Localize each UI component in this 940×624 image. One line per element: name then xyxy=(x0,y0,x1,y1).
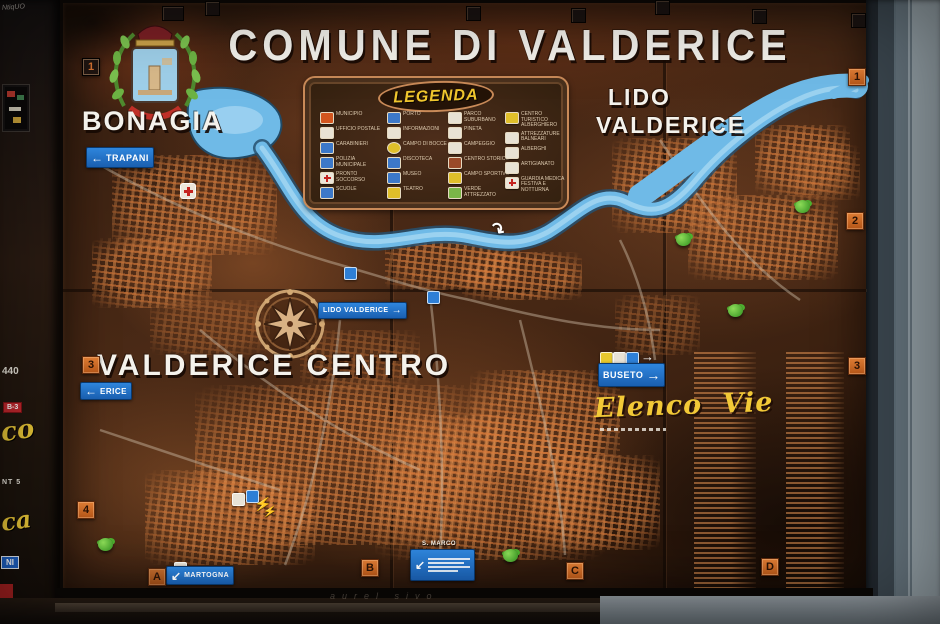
fastener-bolt-icon xyxy=(571,8,586,23)
bottom-ledge-dark xyxy=(0,598,608,624)
urban-area xyxy=(790,145,860,200)
grid-marker-4-left: 4 xyxy=(77,501,95,519)
legend-item: DISCOTECA xyxy=(387,157,447,169)
wall-script-fragment-1: co xyxy=(0,414,36,448)
grid-marker-2-right: 2 xyxy=(846,212,864,230)
green-area-icon xyxy=(448,187,462,199)
legend-item: TEATRO xyxy=(387,187,447,199)
road-sign-buseto: BUSETO → xyxy=(598,363,665,387)
camping-icon xyxy=(448,142,462,154)
label-san-marco: S. MARCO xyxy=(422,541,456,547)
grid-marker-b-bottom: B xyxy=(361,559,379,577)
arrow-right-icon: → xyxy=(646,368,660,382)
fastener-bolt-icon xyxy=(466,6,481,21)
hotel-icon xyxy=(505,147,519,159)
arrow-right-icon: → xyxy=(641,349,654,364)
amenity-icon xyxy=(232,493,245,506)
historic-center-icon xyxy=(448,157,462,169)
legend-item: ARTIGIANATO xyxy=(505,162,567,174)
legend-item: CAMPO SPORTIVO xyxy=(448,172,512,184)
grid-marker-3-right: 3 xyxy=(848,357,866,375)
arrow-down-left-icon: ↙ xyxy=(415,559,425,571)
legend-item: INFORMAZIONI xyxy=(387,127,447,139)
fastener-bolt-icon xyxy=(851,13,866,28)
crafts-icon xyxy=(505,162,519,174)
road-sign-san-marco: ↙ xyxy=(410,549,475,581)
carabinieri-icon xyxy=(320,142,334,154)
arrow-down-left-icon: ↙ xyxy=(171,570,181,582)
legend-column-4: CENTRO TURISTICO ALBERGHIERO ATTREZZATUR… xyxy=(505,112,567,193)
red-cross-icon xyxy=(180,183,196,199)
legend-item: ATTREZZATURE BALNEARI xyxy=(505,132,567,144)
urban-area xyxy=(462,252,582,300)
road-sign-martogna: ↙ MARTOGNA xyxy=(166,566,234,585)
adjacent-poster-strip: NtiqUO 440 B-3 co NT 5 ca NI xyxy=(0,0,60,624)
legend-item: MUNICIPIO xyxy=(320,112,384,124)
police-icon xyxy=(320,157,334,169)
board-title: COMUNE DI VALDERICE xyxy=(196,22,824,71)
crown-icon xyxy=(136,26,174,46)
graffiti-scribble: NtiqUO xyxy=(2,3,25,12)
legend-item: UFFICIO POSTALE xyxy=(320,127,384,139)
grid-marker-d-bottom: D xyxy=(761,558,779,576)
legend-title: LEGENDA xyxy=(377,79,494,114)
wall-script-fragment-2: ca xyxy=(0,504,33,537)
shield-icon xyxy=(132,48,178,102)
street-index-column-2 xyxy=(786,352,844,588)
amenity-icon xyxy=(344,267,357,280)
arrow-right-icon: → xyxy=(392,306,402,316)
legend-item: PRONTO SOCCORSO xyxy=(320,172,384,184)
legend-item: ALBERGHI xyxy=(505,147,567,159)
tree-icon xyxy=(676,233,691,246)
fastener-bolt-icon xyxy=(655,0,670,15)
urban-area xyxy=(92,238,212,308)
elenco-vie-subtext xyxy=(600,428,666,431)
park-icon xyxy=(448,112,462,124)
legend-item: CAMPO DI BOCCE xyxy=(387,142,447,154)
museum-icon xyxy=(387,172,401,184)
urban-area xyxy=(150,300,270,355)
small-poster xyxy=(2,84,30,132)
harbor-icon xyxy=(387,112,401,124)
concrete-wall xyxy=(866,0,940,624)
medical-guard-icon xyxy=(505,177,519,189)
legend-item: VERDE ATTREZZATO xyxy=(448,187,512,199)
legend-item: CAMPEGGIO xyxy=(448,142,512,154)
urban-area xyxy=(530,455,660,550)
grid-marker-1-top-left: 1 xyxy=(82,58,100,76)
arrow-left-icon: ← xyxy=(85,385,97,397)
wall-number-fragment: 440 xyxy=(2,366,19,377)
label-elenco-vie: Elenco Vie xyxy=(594,387,774,424)
lightning-mark-icon: ⚡ xyxy=(262,504,277,519)
urban-area xyxy=(688,195,838,280)
tourist-resort-icon xyxy=(505,112,519,124)
label-bonagia: BONAGIA xyxy=(82,106,224,137)
legend-column-1: MUNICIPIO UFFICIO POSTALE CARABINIERI PO… xyxy=(320,112,384,199)
info-icon xyxy=(387,127,401,139)
school-icon xyxy=(320,187,334,199)
road-sign-erice: ← ERICE xyxy=(80,382,132,400)
first-aid-icon xyxy=(320,172,334,184)
grid-marker-3-left: 3 xyxy=(82,356,100,374)
road-sign-trapani: ← TRAPANI xyxy=(86,147,154,168)
grid-marker-c-bottom: C xyxy=(566,562,584,580)
legend-column-3: PARCO SUBURBANO PINETA CAMPEGGIO CENTRO … xyxy=(448,112,512,199)
tree-icon xyxy=(795,200,810,213)
tree-icon xyxy=(728,304,743,317)
beach-facilities-icon xyxy=(505,132,519,144)
grid-marker-1-right: 1 xyxy=(848,68,866,86)
legend-item: SCUOLE xyxy=(320,187,384,199)
tree-icon xyxy=(98,538,113,551)
urban-area xyxy=(145,470,315,565)
urban-area xyxy=(615,295,700,355)
legend-item: POLIZIA MUNICIPALE xyxy=(320,157,384,169)
sports-field-icon xyxy=(448,172,462,184)
legend-item: CARABINIERI xyxy=(320,142,384,154)
arrow-left-icon: ← xyxy=(91,152,103,164)
legend-item: CENTRO STORICO xyxy=(448,157,512,169)
map-board-photo: NtiqUO 440 B-3 co NT 5 ca NI aurel sivo xyxy=(0,0,940,624)
disco-icon xyxy=(387,157,401,169)
post-office-icon xyxy=(320,127,334,139)
label-lido-line1: LIDO xyxy=(608,84,671,111)
legend-item: CENTRO TURISTICO ALBERGHIERO xyxy=(505,112,567,129)
wall-text-fragment: NT 5 xyxy=(2,479,21,486)
label-lido-line2: VALDERICE xyxy=(596,112,745,139)
wall-tag-fragment: NI xyxy=(1,556,19,569)
legend-box: LEGENDA MUNICIPIO UFFICIO POSTALE CARABI… xyxy=(303,76,569,210)
sign-text-lines xyxy=(428,558,470,572)
theater-icon xyxy=(387,187,401,199)
legend-column-2: PORTO INFORMAZIONI CAMPO DI BOCCE DISCOT… xyxy=(387,112,447,199)
road-sign-lido-valderice: LIDO VALDERICE → xyxy=(318,302,407,319)
legend-item: MUSEO xyxy=(387,172,447,184)
legend-item: PORTO xyxy=(387,112,447,124)
label-valderice-centro: VALDERICE CENTRO xyxy=(97,349,451,383)
scratched-graffiti: aurel sivo xyxy=(330,591,790,601)
amenity-icon xyxy=(427,291,440,304)
legend-item: GUARDIA MEDICA FESTIVA E NOTTURNA xyxy=(505,177,567,194)
bocce-icon xyxy=(387,142,401,154)
town-hall-icon xyxy=(320,112,334,124)
legend-item: PARCO SUBURBANO xyxy=(448,112,512,124)
legend-item: PINETA xyxy=(448,127,512,139)
wall-badge-fragment: B-3 xyxy=(3,402,22,413)
grid-marker-a-bottom: A xyxy=(148,568,166,586)
tree-icon xyxy=(503,549,518,562)
pine-forest-icon xyxy=(448,127,462,139)
